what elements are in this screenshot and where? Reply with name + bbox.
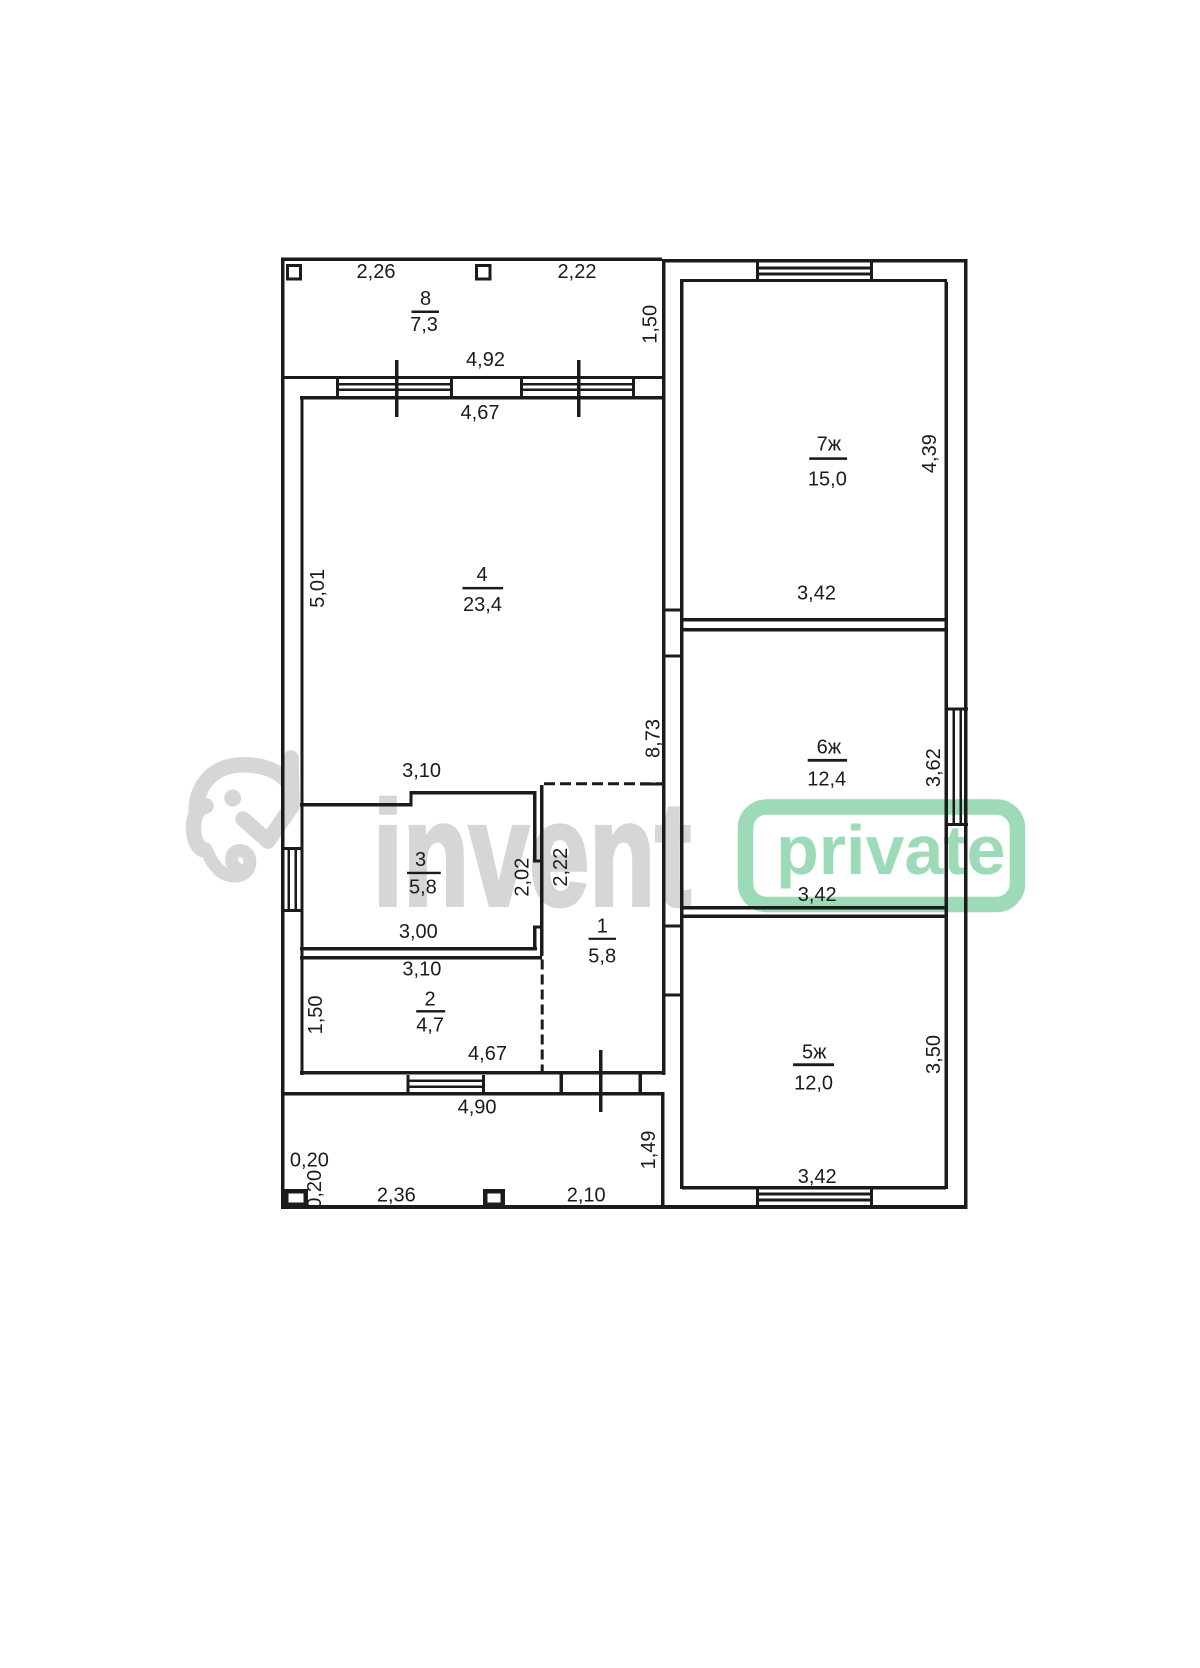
svg-text:4,90: 4,90 xyxy=(458,1097,497,1119)
svg-text:2,02: 2,02 xyxy=(512,858,534,897)
svg-text:2,10: 2,10 xyxy=(567,1185,606,1207)
svg-text:1,50: 1,50 xyxy=(640,305,662,344)
svg-text:3,42: 3,42 xyxy=(797,583,836,605)
svg-text:4,7: 4,7 xyxy=(416,1015,444,1037)
svg-text:1: 1 xyxy=(597,916,608,938)
svg-text:2: 2 xyxy=(425,989,436,1011)
svg-text:3: 3 xyxy=(415,849,426,871)
svg-text:4,67: 4,67 xyxy=(468,1043,507,1065)
svg-text:3,50: 3,50 xyxy=(923,1035,945,1074)
svg-text:4,67: 4,67 xyxy=(461,402,500,424)
svg-text:3,42: 3,42 xyxy=(798,1166,837,1188)
svg-text:0,20: 0,20 xyxy=(290,1150,329,1172)
svg-text:1,50: 1,50 xyxy=(305,995,327,1034)
svg-text:4,92: 4,92 xyxy=(466,349,505,371)
svg-text:23,4: 23,4 xyxy=(463,594,502,616)
svg-text:3,62: 3,62 xyxy=(923,748,945,787)
svg-text:6ж: 6ж xyxy=(817,737,842,759)
svg-text:2,26: 2,26 xyxy=(357,261,396,283)
svg-text:2,36: 2,36 xyxy=(377,1185,416,1207)
svg-text:7ж: 7ж xyxy=(817,434,842,456)
svg-text:3,10: 3,10 xyxy=(402,959,441,981)
svg-text:4,39: 4,39 xyxy=(919,434,941,473)
svg-text:0,20: 0,20 xyxy=(304,1170,326,1209)
svg-text:3,10: 3,10 xyxy=(402,760,441,782)
svg-text:2,22: 2,22 xyxy=(550,848,572,887)
svg-text:3,00: 3,00 xyxy=(399,921,438,943)
svg-text:5,8: 5,8 xyxy=(588,946,616,968)
svg-text:15,0: 15,0 xyxy=(808,469,847,491)
svg-text:8,73: 8,73 xyxy=(642,719,664,758)
svg-text:7,3: 7,3 xyxy=(410,314,438,336)
svg-text:3,42: 3,42 xyxy=(798,884,837,906)
svg-text:12,4: 12,4 xyxy=(807,769,846,791)
svg-text:private: private xyxy=(776,811,1006,889)
svg-text:4: 4 xyxy=(476,564,487,586)
svg-text:1,49: 1,49 xyxy=(638,1130,660,1169)
svg-text:12,0: 12,0 xyxy=(794,1073,833,1095)
svg-text:5,01: 5,01 xyxy=(307,569,329,608)
svg-text:5,8: 5,8 xyxy=(409,877,437,899)
svg-text:2,22: 2,22 xyxy=(558,261,597,283)
svg-text:5ж: 5ж xyxy=(802,1042,827,1064)
svg-text:8: 8 xyxy=(420,288,431,310)
